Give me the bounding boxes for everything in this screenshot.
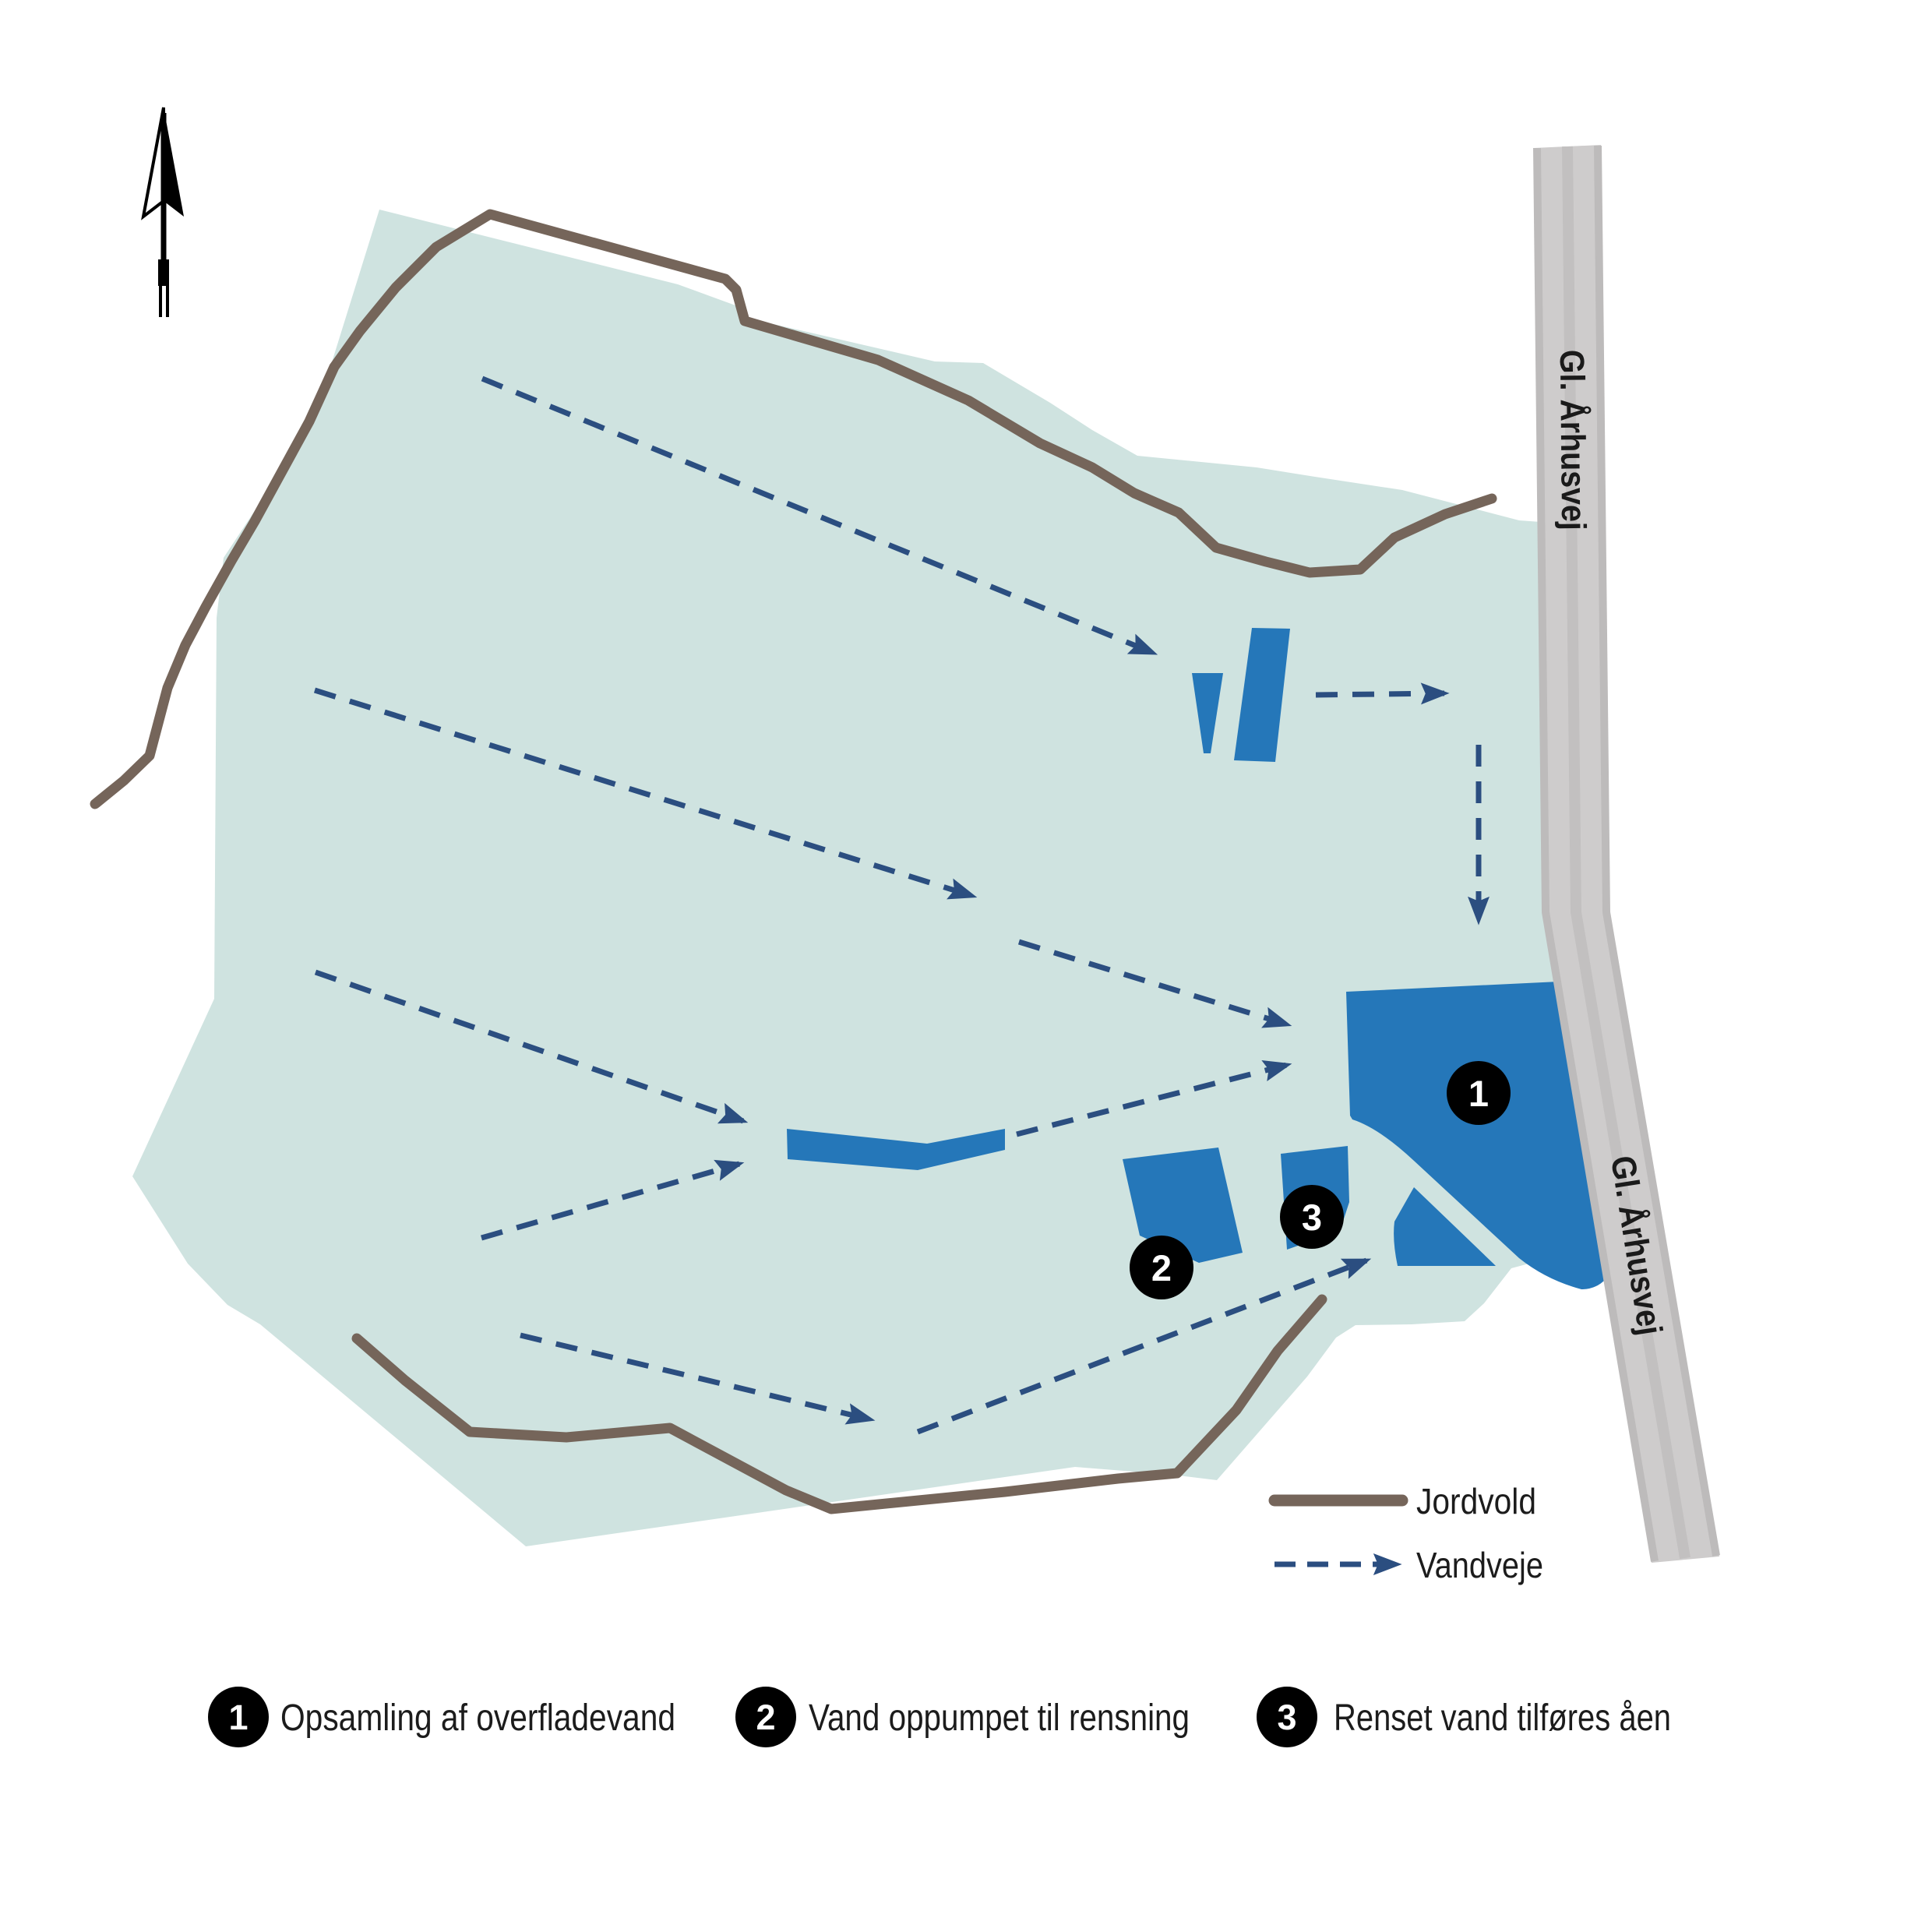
svg-text:2: 2: [756, 1698, 775, 1737]
svg-text:Opsamling af overfladevand: Opsamling af overfladevand: [280, 1698, 675, 1739]
svg-text:Renset vand tilføres åen: Renset vand tilføres åen: [1334, 1698, 1671, 1739]
svg-text:Jordvold: Jordvold: [1416, 1481, 1536, 1521]
svg-text:1: 1: [228, 1698, 248, 1737]
svg-text:1: 1: [1468, 1073, 1489, 1114]
svg-text:3: 3: [1277, 1698, 1296, 1737]
svg-text:3: 3: [1302, 1197, 1322, 1238]
svg-text:Gl. Århusvej: Gl. Århusvej: [1553, 350, 1592, 531]
svg-text:Vandveje: Vandveje: [1416, 1545, 1543, 1585]
svg-text:Vand oppumpet til rensning: Vand oppumpet til rensning: [809, 1698, 1190, 1739]
svg-text:2: 2: [1151, 1247, 1172, 1289]
